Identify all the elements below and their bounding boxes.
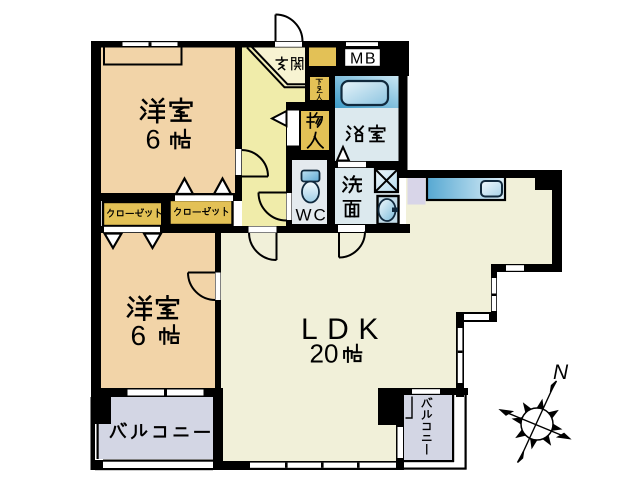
- svg-text:N: N: [553, 361, 569, 384]
- svg-text:20: 20: [310, 339, 339, 369]
- svg-text:WC: WC: [296, 206, 328, 225]
- svg-text:MB: MB: [350, 51, 377, 68]
- svg-text:6: 6: [131, 320, 147, 351]
- svg-text:6: 6: [146, 125, 161, 155]
